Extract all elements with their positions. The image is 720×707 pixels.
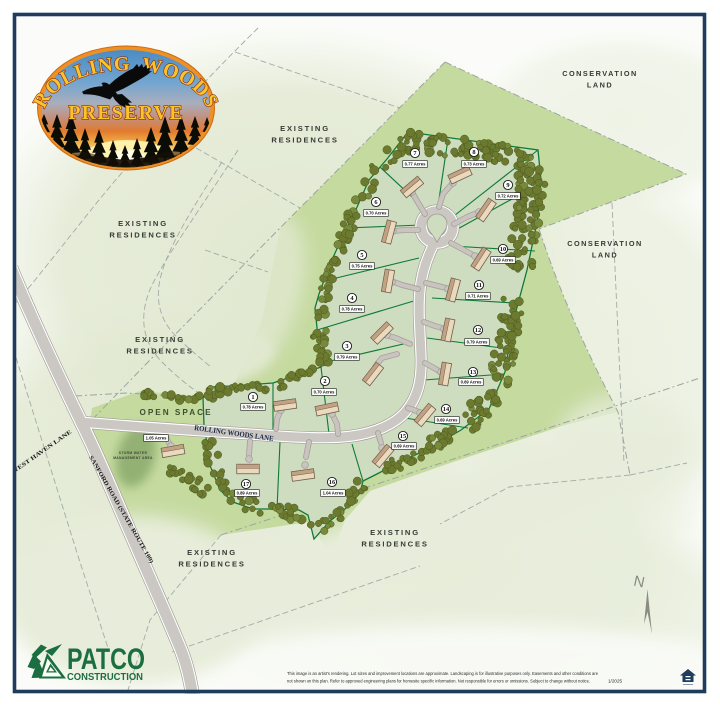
- svg-text:0.72 Acres: 0.72 Acres: [498, 194, 519, 199]
- svg-text:13: 13: [470, 369, 476, 376]
- svg-text:OPEN SPACE: OPEN SPACE: [139, 408, 212, 417]
- svg-text:0.70 Acres: 0.70 Acres: [366, 211, 387, 216]
- svg-text:1.05 Acres: 1.05 Acres: [146, 436, 167, 441]
- svg-text:1.04 Acres: 1.04 Acres: [323, 491, 344, 496]
- svg-text:0.70 Acres: 0.70 Acres: [314, 390, 335, 395]
- svg-text:0.77 Acres: 0.77 Acres: [405, 162, 426, 167]
- svg-text:0.75 Acres: 0.75 Acres: [352, 264, 373, 269]
- svg-text:0.69 Acres: 0.69 Acres: [437, 418, 458, 423]
- svg-text:14: 14: [443, 406, 450, 413]
- svg-text:0.69 Acres: 0.69 Acres: [394, 444, 415, 449]
- svg-text:12: 12: [475, 327, 481, 334]
- svg-text:1: 1: [251, 394, 254, 401]
- svg-text:17: 17: [243, 481, 250, 488]
- svg-text:PRESERVE: PRESERVE: [68, 102, 184, 124]
- svg-text:0.78 Acres: 0.78 Acres: [342, 307, 363, 312]
- svg-text:0.89 Acres: 0.89 Acres: [237, 491, 258, 496]
- svg-text:2: 2: [323, 378, 326, 385]
- svg-text:5: 5: [360, 252, 363, 259]
- svg-text:0.78 Acres: 0.78 Acres: [243, 405, 264, 410]
- svg-text:0.79 Acres: 0.79 Acres: [337, 355, 358, 360]
- svg-text:0.71 Acres: 0.71 Acres: [468, 294, 489, 299]
- svg-text:This image is an artist's rend: This image is an artist's rendering. Lot…: [287, 671, 599, 676]
- svg-text:16: 16: [329, 479, 336, 486]
- svg-text:0.79 Acres: 0.79 Acres: [467, 340, 488, 345]
- svg-text:9: 9: [506, 182, 509, 189]
- svg-text:STORM WATERMANAGEMENT AREA: STORM WATERMANAGEMENT AREA: [113, 451, 153, 460]
- svg-text:1/2025: 1/2025: [608, 679, 622, 684]
- svg-text:3: 3: [345, 343, 348, 350]
- svg-text:15: 15: [400, 433, 406, 440]
- svg-text:not shown on this plan. Refer: not shown on this plan. Refer to approve…: [287, 679, 590, 684]
- svg-text:11: 11: [476, 282, 482, 289]
- svg-text:CONSTRUCTION: CONSTRUCTION: [67, 671, 143, 683]
- svg-text:0.69 Acres: 0.69 Acres: [461, 380, 482, 385]
- svg-text:8: 8: [472, 149, 475, 156]
- svg-text:0.69 Acres: 0.69 Acres: [493, 258, 514, 263]
- svg-text:10: 10: [500, 246, 506, 253]
- svg-text:0.73 Acres: 0.73 Acres: [464, 162, 485, 167]
